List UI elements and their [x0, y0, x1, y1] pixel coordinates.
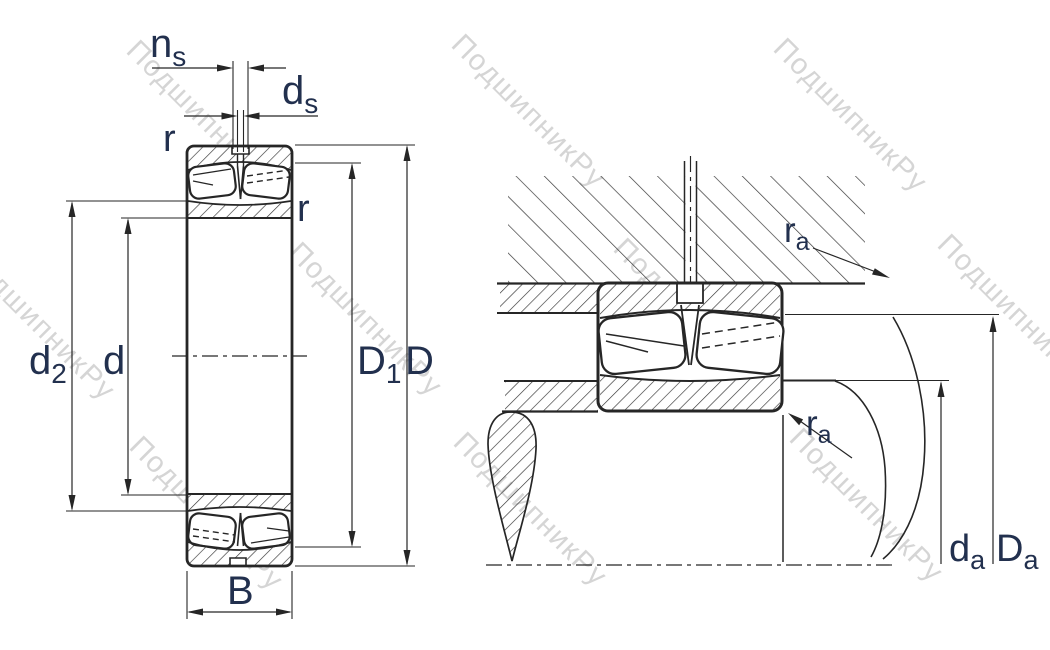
- roller-left: [597, 311, 686, 375]
- arrowhead: [349, 163, 356, 179]
- arrowhead: [125, 218, 132, 234]
- arrowhead: [244, 113, 260, 120]
- arrowhead: [349, 531, 356, 547]
- arrowhead: [938, 381, 945, 397]
- arrowhead: [248, 65, 264, 72]
- arrowhead: [187, 609, 203, 616]
- label-B: B: [227, 569, 254, 613]
- label-r-side: r: [297, 188, 310, 230]
- label-ds: ds: [282, 69, 318, 119]
- arrowhead: [276, 609, 292, 616]
- label-r-top: r: [163, 118, 176, 160]
- arrowhead: [69, 201, 76, 217]
- watermark-text: ПодшипникРу: [767, 32, 934, 199]
- mounted-bearing-section: [597, 283, 784, 411]
- shaft-shoulder-section: [505, 381, 598, 411]
- arrowhead: [69, 495, 76, 511]
- arrowhead: [404, 145, 411, 161]
- bearing-dimension-drawing: ПодшипникРу ПодшипникРу ПодшипникРу Подш…: [0, 0, 1050, 650]
- arrowhead: [217, 65, 233, 72]
- arrowhead: [404, 550, 411, 566]
- watermark-text: ПодшипникРу: [445, 28, 612, 195]
- right-view-mounting: ra ra da Da: [486, 156, 1039, 575]
- label-D: D: [405, 339, 434, 383]
- housing-shoulder: [497, 285, 598, 314]
- roller-top-left: [187, 162, 237, 199]
- watermark-text: ПодшипникРу: [931, 228, 1050, 395]
- roller-right: [695, 311, 784, 375]
- arrowhead: [872, 268, 890, 278]
- drawing-canvas: ПодшипникРу ПодшипникРу ПодшипникРу Подш…: [0, 0, 1050, 650]
- arrowhead: [990, 316, 997, 332]
- left-view-bearing-section: [172, 146, 307, 566]
- label-ns: ns: [150, 22, 186, 72]
- label-ra-bottom: ra: [806, 404, 832, 449]
- roller-top-right: [241, 162, 291, 199]
- dimension-D1: D1: [295, 163, 401, 547]
- label-d: d: [103, 339, 125, 383]
- arrowhead: [788, 413, 803, 425]
- housing-shoulder-section: [500, 285, 598, 313]
- label-da: da: [949, 528, 986, 575]
- arrowhead: [222, 113, 238, 120]
- label-Da: Da: [996, 528, 1039, 575]
- shaft-collar-section: [488, 412, 536, 561]
- arrowhead: [125, 479, 132, 495]
